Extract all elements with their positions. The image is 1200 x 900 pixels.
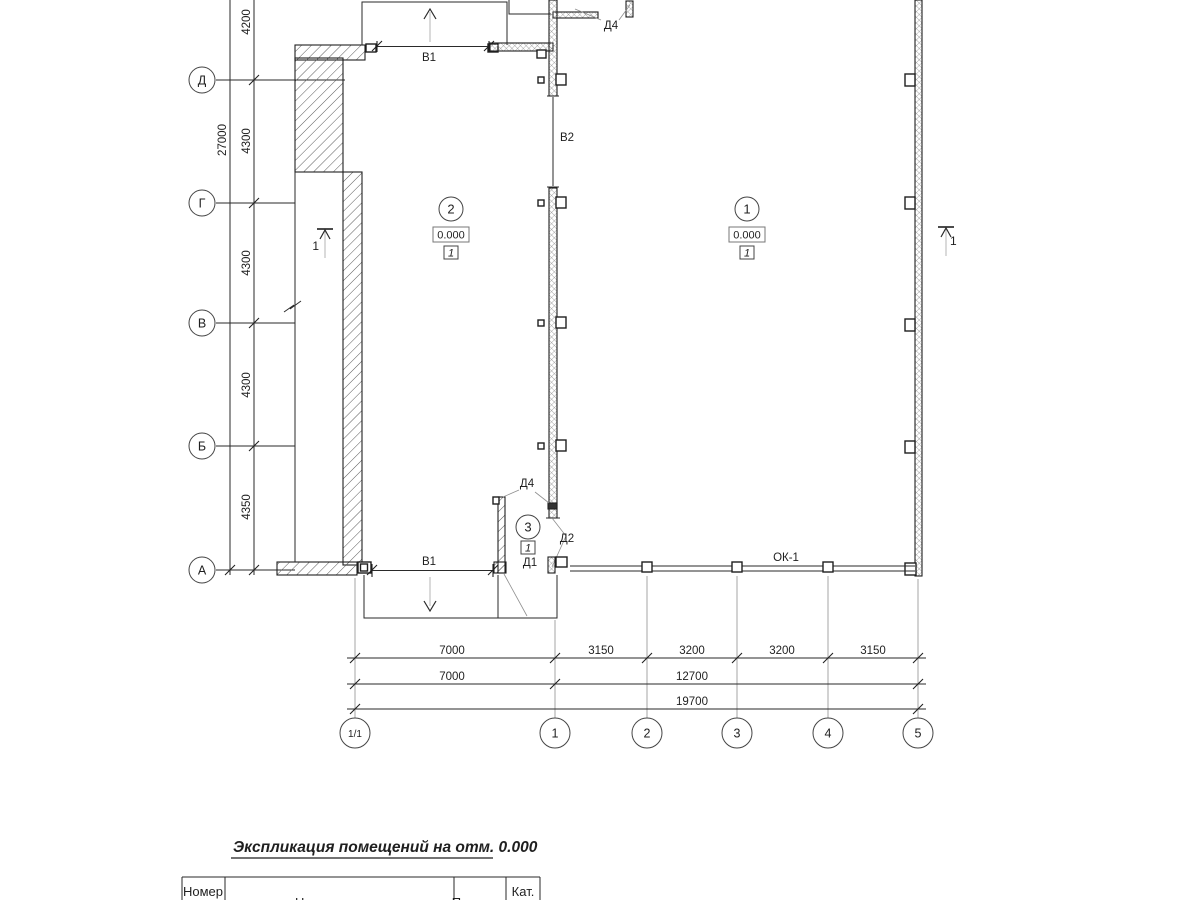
axis-label: Д [198,74,207,88]
porch-top [362,2,507,45]
schedule-title-text: Экспликация помещений на отм. 0.000 [233,839,538,856]
gate-v2-label: В2 [560,132,574,144]
bottom-dimensions: 7000 3150 3200 3200 3150 7000 12700 1970… [347,645,926,714]
axis-bubble-col-2: 2 [632,718,662,748]
axis-label: 2 [644,727,651,741]
section-number: 1 [950,234,957,248]
axis-bubble-row-b: Б [189,433,215,459]
room-number: 3 [524,520,531,535]
axis-label: 4 [825,727,832,741]
axis-bubble-col-4: 4 [813,718,843,748]
room-category: 1 [744,248,750,260]
gate-v1-bottom-label: В1 [422,556,436,568]
axis-bubble-row-a: А [189,557,215,583]
gate-v1-top: В1 [366,41,498,64]
axis-bubble-row-d: Д [189,67,215,93]
schedule-col-number: Номер [183,884,223,899]
top-wall-and-door-d4: Д4 [490,0,633,58]
gate-v1-top-label: В1 [422,52,436,64]
axis-bubble-col-1: 1 [540,718,570,748]
dim-3150-b: 3150 [860,645,886,657]
window-ok1-label: ОК-1 [773,552,799,564]
axis-label: 1 [552,727,559,741]
axis-bubble-col-1-1: 1/1 [340,718,370,748]
window-ok1: ОК-1 [570,552,915,572]
axis-label: 1/1 [348,729,362,740]
dim-7000-a: 7000 [439,645,465,657]
floor-plan-canvas: 4200 4300 4300 4300 4350 27000 Д Г В Б [0,0,1200,900]
dim-left-4300-c: 4300 [241,372,253,398]
room-number: 2 [447,202,454,217]
dim-7000-b: 7000 [439,671,465,683]
axis-bubble-row-v: В [189,310,215,336]
dim-3200-b: 3200 [769,645,795,657]
floor-plan-page: 4200 4300 4300 4300 4350 27000 Д Г В Б [0,0,1200,900]
dim-3150-a: 3150 [588,645,614,657]
left-exterior-wall [277,45,365,575]
door-d4-vestibule-label: Д4 [520,478,535,490]
room-category: 1 [525,543,531,555]
gate-v1-bottom: В1 [358,556,498,577]
dim-19700: 19700 [676,696,708,708]
room-number: 1 [743,202,750,217]
door-d2-label: Д2 [560,533,574,545]
room-category: 1 [448,248,454,260]
axis-label: В [198,317,206,331]
schedule-col-area: Площадь [452,895,509,900]
door-d1-label: Д1 [523,557,537,569]
axis-label: 5 [915,727,922,741]
dim-12700: 12700 [676,671,708,683]
interior-wall: В2 [538,0,574,518]
schedule-col-category: Кат. [512,884,535,899]
dim-left-4300-a: 4300 [241,128,253,154]
col-axes: 1/1 1 2 3 4 5 [340,718,933,748]
dim-left-4300-b: 4300 [241,250,253,276]
axis-bubble-col-5: 5 [903,718,933,748]
schedule-title: Экспликация помещений на отм. 0.000 [231,839,538,858]
axis-label: Г [199,197,206,211]
dim-left-4200: 4200 [241,9,253,35]
section-mark-left: 1 [312,229,333,258]
axis-bubble-row-g: Г [189,190,215,216]
axis-label: А [198,564,207,578]
section-number: 1 [312,239,319,253]
axis-label: Б [198,440,206,454]
left-dimension-chains: 4200 4300 4300 4300 4350 27000 [217,0,259,575]
room-elevation: 0.000 [733,230,761,242]
right-exterior-wall [905,0,922,576]
schedule-table: Номер Наименование Площадь Кат. [182,877,540,900]
section-mark-right: 1 [938,227,957,256]
break-symbol [284,301,301,312]
axis-label: 3 [734,727,741,741]
dim-left-4350: 4350 [241,494,253,520]
porch-bottom [364,575,557,618]
dim-3200-a: 3200 [679,645,705,657]
door-d4-top-label: Д4 [604,20,619,32]
room-label-3: 3 1 [516,515,540,555]
axis-bubble-col-3: 3 [722,718,752,748]
room-elevation: 0.000 [437,230,465,242]
dim-left-total-27000: 27000 [217,124,229,156]
schedule-col-name: Наименование [295,895,385,900]
room-label-2: 2 0.000 1 [433,197,469,260]
room-label-1: 1 0.000 1 [729,197,765,260]
